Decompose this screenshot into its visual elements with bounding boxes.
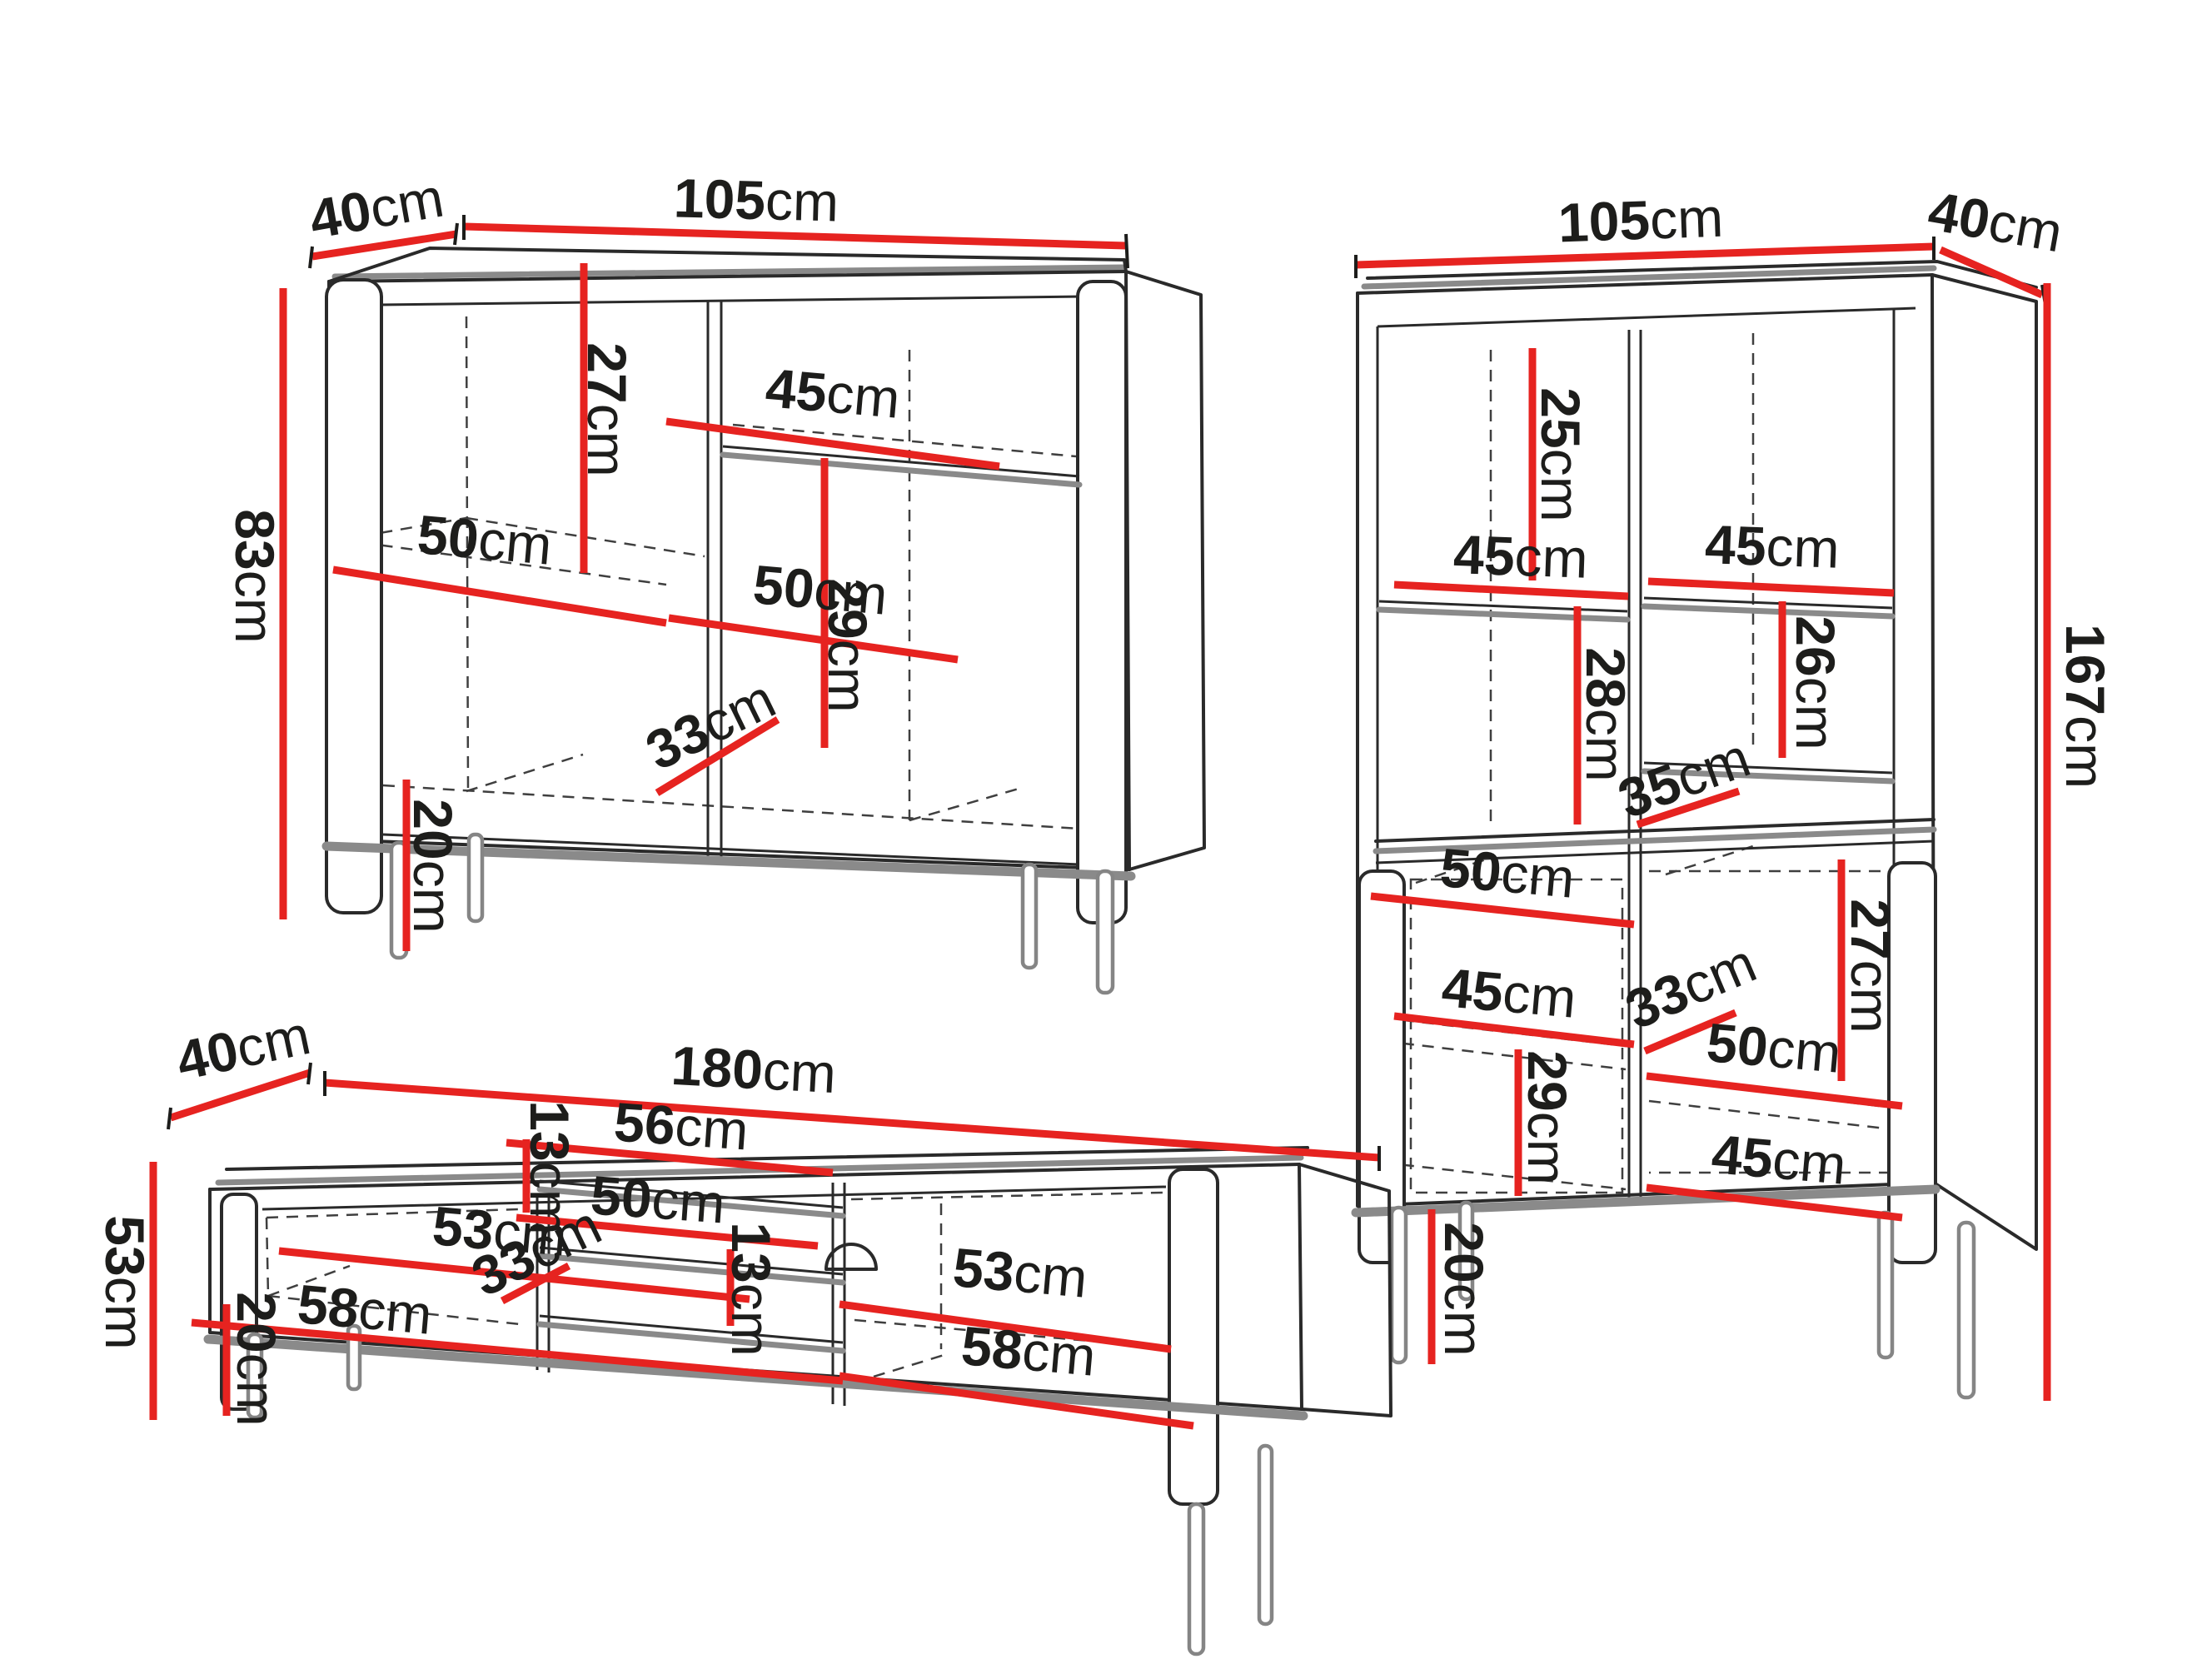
dim-label-bookcase-top-right-clearance: 26cm: [1785, 615, 1846, 750]
dim-label-bookcase-height: 167cm: [2055, 624, 2116, 789]
dim-label-sideboard-divider-clearance: 27cm: [576, 342, 638, 476]
dim-label-bookcase-left-shelf-width: 45cm: [1452, 523, 1589, 590]
sideboard-leg: [469, 834, 482, 921]
dim-label-bookcase-right-door-shelf-width: 45cm: [1709, 1123, 1848, 1196]
dim-label-sideboard-left-width: 50cm: [415, 503, 554, 576]
tv-stand-right-door-edge: [1169, 1169, 1218, 1504]
dim-label-bookcase-right-door-clearance: 27cm: [1840, 899, 1901, 1033]
bookcase-drawing: 105cm 40cm 167cm 25cm 45cm 26cm 45cm 28c…: [1356, 180, 2116, 1401]
dim-label-tv-stand-right-door-width: 58cm: [959, 1314, 1098, 1387]
dim-label-tv-stand-niche-shelf-width: 50cm: [589, 1163, 727, 1234]
dim-label-sideboard-right-shelf-width: 45cm: [763, 356, 902, 430]
dim-label-tv-stand-bottom-niche-height: 13cm: [720, 1222, 782, 1356]
bookcase-leg: [1879, 1213, 1892, 1358]
dim-label-bookcase-right-door-width: 50cm: [1704, 1011, 1843, 1084]
dim-label-tv-stand-height: 53cm: [94, 1215, 156, 1349]
dim-label-tv-stand-niche-width: 56cm: [612, 1090, 750, 1161]
dim-label-bookcase-left-door-width: 50cm: [1437, 836, 1577, 909]
dim-label-bookcase-left-clearance: 28cm: [1575, 647, 1637, 781]
sideboard-left-door-edge: [326, 280, 381, 913]
dim-label-bookcase-left-door-clearance: 29cm: [1517, 1050, 1578, 1184]
diagram-canvas: 40cm 105cm 83cm 27cm 45cm 50cm 50cm 29cm…: [0, 0, 2212, 1659]
tv-stand-leg: [1259, 1446, 1272, 1624]
sideboard-right-door-edge: [1078, 281, 1126, 923]
dim-label-sideboard-height: 83cm: [224, 509, 286, 643]
bookcase-left-door-edge: [1359, 871, 1404, 1263]
dim-label-tv-stand-leg-height: 20cm: [226, 1292, 287, 1426]
dim-label-bookcase-top-right-shelf-width: 45cm: [1704, 513, 1841, 580]
tv-stand-leg: [1189, 1504, 1203, 1654]
dim-label-bookcase-width: 105cm: [1557, 187, 1725, 254]
sideboard-drawing: 40cm 105cm 83cm 27cm 45cm 50cm 50cm 29cm…: [224, 167, 1204, 993]
bookcase-leg: [1392, 1208, 1406, 1363]
sideboard-leg: [1023, 864, 1036, 968]
furniture-dimensions-diagram: 40cm 105cm 83cm 27cm 45cm 50cm 50cm 29cm…: [0, 0, 2212, 1659]
dim-label-sideboard-leg-height: 20cm: [402, 799, 464, 933]
dim-label-bookcase-left-door-shelf-width: 45cm: [1439, 956, 1578, 1029]
tv-stand-drawing: 40cm 180cm 53cm 53cm 58cm 13cm 56cm 50cm…: [94, 1004, 1391, 1654]
dim-label-sideboard-right-clearance: 29cm: [817, 578, 879, 712]
dim-label-bookcase-top-left-clearance: 25cm: [1530, 387, 1592, 521]
dim-label-tv-stand-width: 180cm: [670, 1034, 838, 1104]
dim-label-sideboard-width: 105cm: [673, 167, 839, 232]
bookcase-leg: [1959, 1223, 1974, 1397]
dim-label-tv-stand-right-width: 53cm: [950, 1236, 1089, 1309]
dim-label-bookcase-leg-height: 20cm: [1433, 1222, 1495, 1356]
sideboard-leg: [1098, 871, 1113, 993]
dim-label-tv-stand-left-door-width: 58cm: [295, 1273, 434, 1346]
